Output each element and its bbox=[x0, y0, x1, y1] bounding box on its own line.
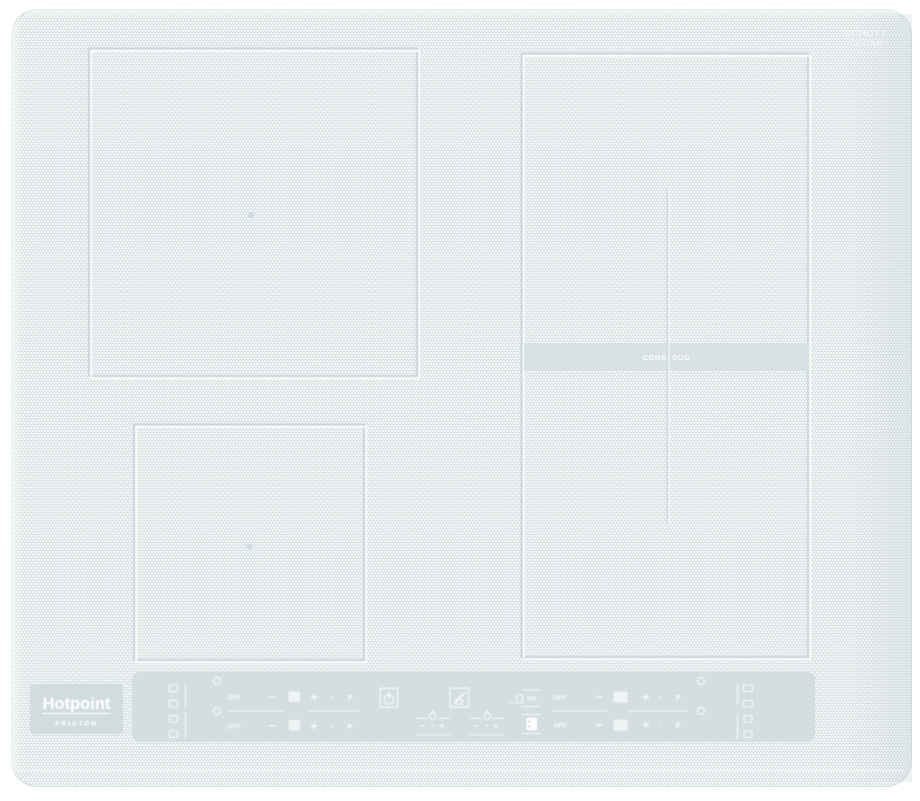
svg-text:P: P bbox=[347, 693, 352, 702]
svg-text:P: P bbox=[675, 693, 680, 702]
svg-text:OFF: OFF bbox=[553, 694, 566, 701]
svg-text:CERAN: CERAN bbox=[850, 40, 883, 49]
svg-text:P: P bbox=[347, 722, 352, 731]
svg-text:OFF: OFF bbox=[227, 723, 240, 730]
svg-text:P: P bbox=[675, 721, 680, 730]
svg-text:5 sec: 5 sec bbox=[507, 701, 516, 705]
svg-text:Hotpoint: Hotpoint bbox=[43, 695, 111, 713]
svg-text:SCHOTT: SCHOTT bbox=[845, 29, 887, 40]
svg-text:OK: OK bbox=[527, 695, 537, 702]
svg-text:OFF: OFF bbox=[553, 722, 566, 729]
svg-text:OFF: OFF bbox=[227, 694, 240, 701]
svg-text:ARISTON: ARISTON bbox=[55, 721, 98, 728]
